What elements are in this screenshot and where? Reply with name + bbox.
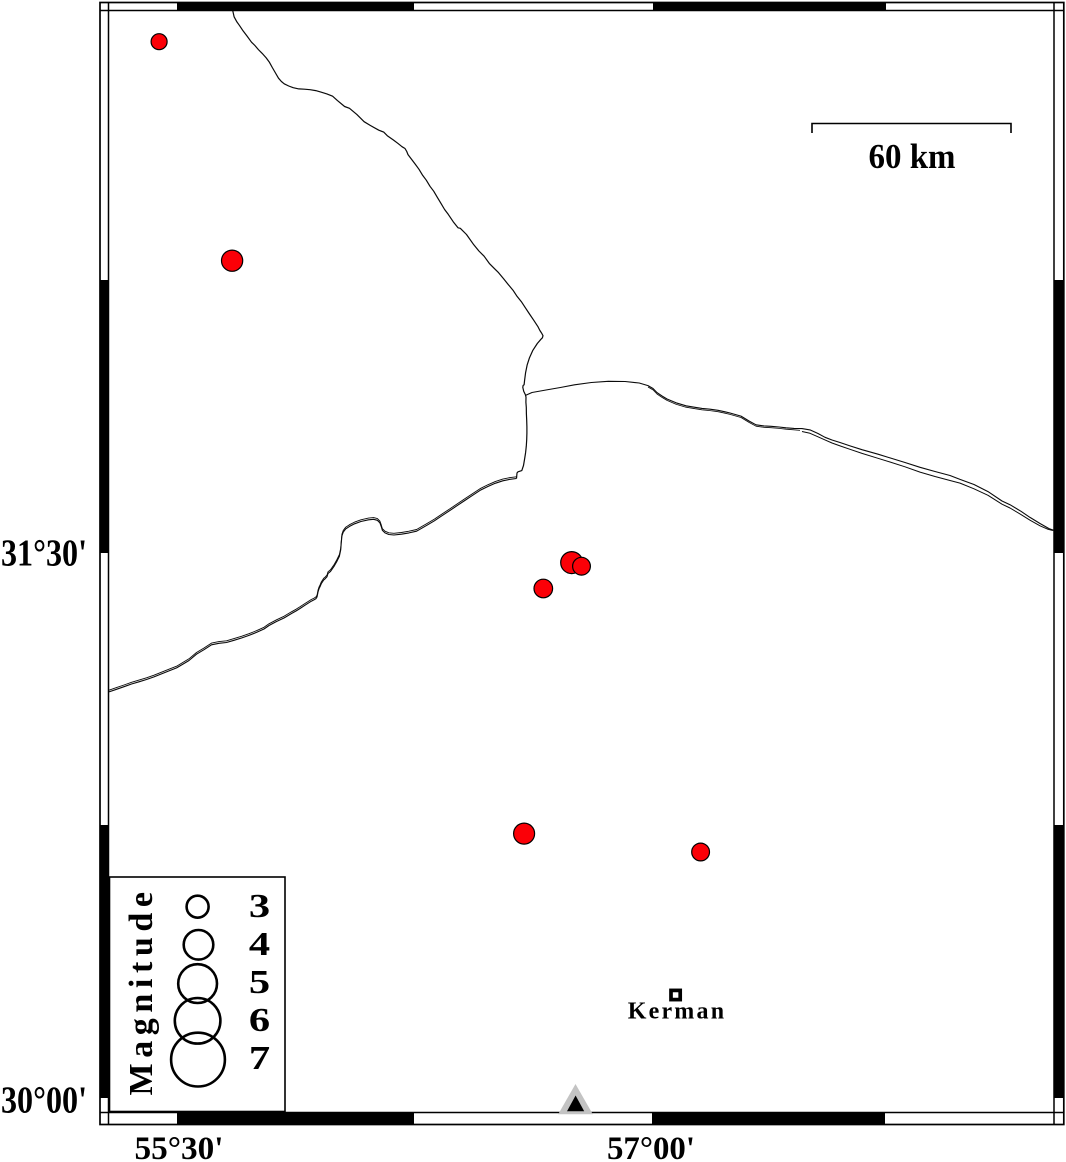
svg-text:3: 3 <box>249 888 270 925</box>
svg-text:4: 4 <box>249 926 270 963</box>
svg-text:7: 7 <box>249 1040 270 1077</box>
svg-text:55°30': 55°30' <box>135 1131 224 1162</box>
svg-text:57°00': 57°00' <box>607 1131 695 1162</box>
svg-text:31°30': 31°30' <box>1 533 87 575</box>
svg-text:Magnitude: Magnitude <box>123 886 160 1095</box>
svg-text:30°00': 30°00' <box>1 1080 87 1122</box>
svg-text:60 km: 60 km <box>869 137 956 176</box>
svg-text:6: 6 <box>249 1002 270 1039</box>
svg-text:5: 5 <box>249 964 270 1001</box>
svg-text:Kerman: Kerman <box>628 999 727 1025</box>
